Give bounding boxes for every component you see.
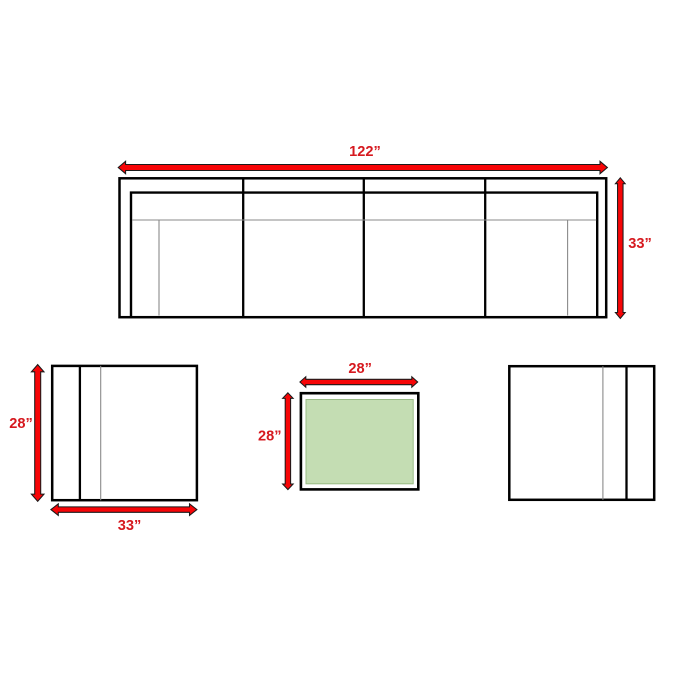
svg-text:28”: 28” xyxy=(348,361,372,377)
svg-text:28”: 28” xyxy=(258,428,282,444)
svg-text:122”: 122” xyxy=(349,144,381,160)
svg-text:33”: 33” xyxy=(628,236,652,252)
svg-text:28”: 28” xyxy=(9,416,33,432)
svg-text:33”: 33” xyxy=(118,518,142,534)
